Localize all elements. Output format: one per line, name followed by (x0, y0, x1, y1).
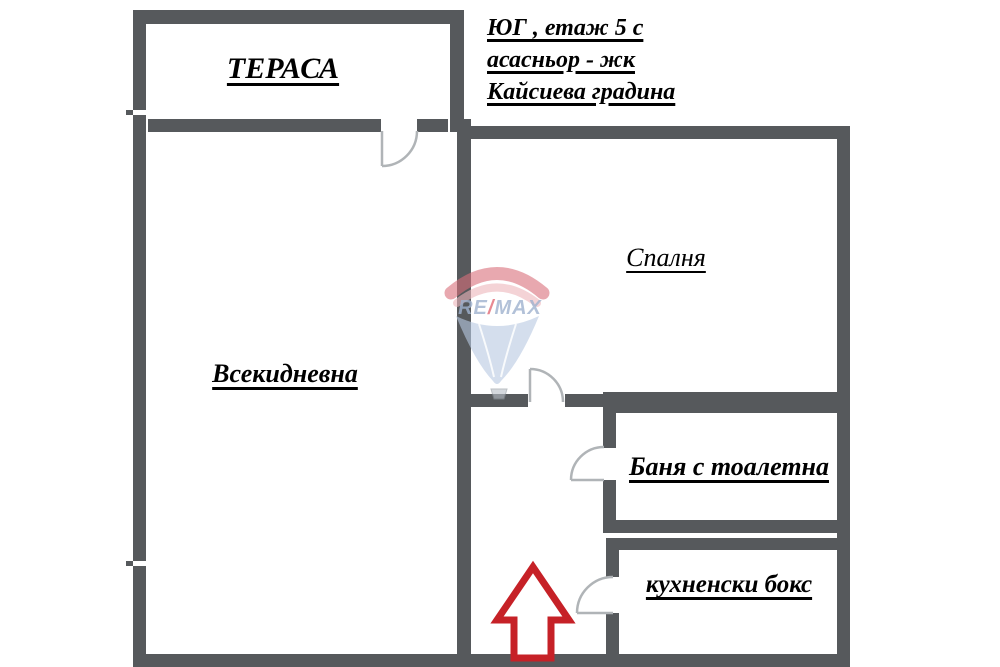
wall-hall-top-right (565, 394, 603, 407)
wall-central-vertical (457, 119, 471, 667)
wall-bathroom-left-lower (603, 480, 616, 520)
bedroom-door-swing (530, 369, 563, 402)
wall-joint-tick-lower (126, 561, 133, 566)
bedroom-door-arc (530, 369, 563, 402)
terrace-door-arc (382, 131, 417, 166)
wall-joint-tick-upper (126, 110, 133, 115)
room-label-bathroom: Баня с тоалетна (614, 452, 844, 482)
plan-heading: ЮГ , етаж 5 с асасньор - жк Кайсиева гра… (487, 12, 675, 108)
wall-kitchen-left-lower (606, 613, 619, 654)
room-label-living: Всекидневна (165, 359, 405, 389)
floor-plan: RE/MAX ЮГ , ета (0, 0, 1000, 667)
remax-logo-max: MAX (494, 297, 541, 319)
wall-top-terrace (133, 10, 464, 24)
room-label-kitchen: кухненски бокс (619, 571, 839, 599)
wall-bottom-exterior (133, 654, 850, 667)
wall-bathroom-top (603, 392, 850, 413)
wall-joint-gap-lower (133, 561, 146, 566)
wall-kitchen-top (606, 538, 850, 550)
wall-terrace-bottom-right (417, 119, 448, 132)
kitchen-door-swing (577, 577, 613, 613)
remax-logo-re: RE (458, 297, 488, 319)
wall-bathroom-bottom (603, 520, 850, 533)
wall-left-exterior (133, 10, 146, 667)
wall-terrace-right (450, 10, 464, 132)
remax-logo-text: RE/MAX (452, 297, 548, 320)
entrance-arrow (497, 567, 569, 658)
bathroom-door-swing (571, 447, 604, 480)
plan-heading-line-1: ЮГ , етаж 5 с (487, 12, 675, 44)
plan-heading-line-2: асасньор - жк (487, 44, 675, 76)
wall-bathroom-left-upper (603, 413, 616, 448)
wall-terrace-bottom-left (148, 119, 381, 132)
wall-bedroom-top (457, 126, 850, 139)
terrace-door-swing (382, 131, 417, 166)
balloon-seam-left (479, 324, 494, 377)
balloon-seam-right (501, 324, 516, 377)
wall-hall-top-left (471, 394, 528, 407)
kitchen-door-arc (577, 577, 613, 613)
wall-kitchen-left-upper (606, 550, 619, 577)
room-label-terrace: ТЕРАСА (173, 52, 393, 86)
wall-joint-gap-upper (133, 110, 146, 115)
plan-heading-line-3: Кайсиева градина (487, 76, 675, 108)
bathroom-door-arc (571, 447, 604, 480)
room-label-bedroom: Спалня (576, 243, 756, 273)
